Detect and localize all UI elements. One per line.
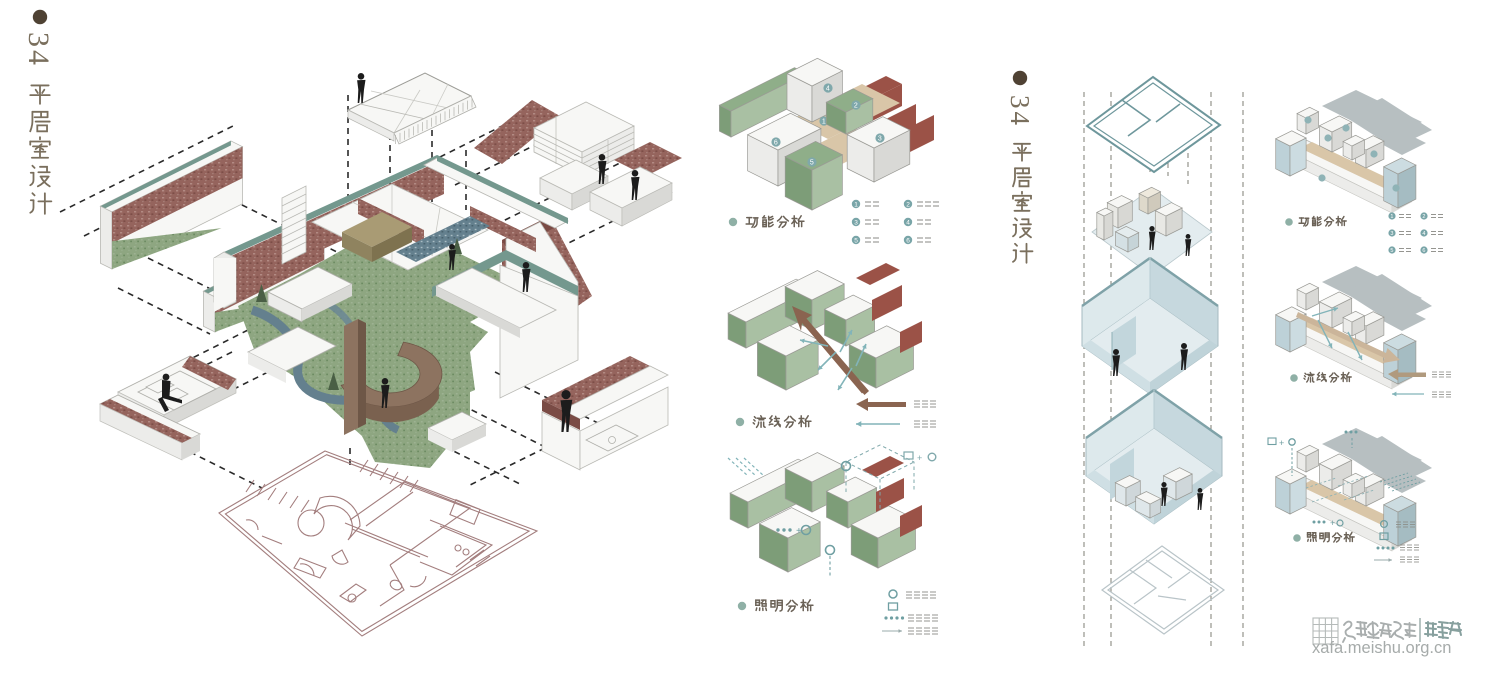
svg-text:6: 6 <box>1422 248 1425 254</box>
svg-text:34: 34 <box>1005 95 1035 128</box>
svg-text:4: 4 <box>826 86 830 93</box>
svg-text:3: 3 <box>854 220 858 227</box>
svg-text:3: 3 <box>1390 231 1393 237</box>
svg-text:34: 34 <box>22 32 55 68</box>
svg-text:1: 1 <box>822 119 826 126</box>
svg-text:+: + <box>1279 438 1284 448</box>
svg-text:3: 3 <box>878 136 882 143</box>
svg-text:6: 6 <box>774 140 778 147</box>
svg-text:+: + <box>796 526 802 537</box>
svg-text:1: 1 <box>854 202 858 209</box>
svg-text:4: 4 <box>1422 231 1425 237</box>
svg-text:1: 1 <box>1390 214 1393 220</box>
svg-text:5: 5 <box>854 238 858 245</box>
svg-text:+: + <box>917 453 922 463</box>
svg-text:5: 5 <box>1390 248 1393 254</box>
svg-text:2: 2 <box>906 202 910 209</box>
svg-text:+: + <box>1330 518 1335 528</box>
svg-text:4: 4 <box>906 220 910 227</box>
svg-text:6: 6 <box>906 238 910 245</box>
svg-text:xafa.meishu.org.cn: xafa.meishu.org.cn <box>1312 639 1451 657</box>
svg-text:2: 2 <box>1422 214 1425 220</box>
svg-text:5: 5 <box>810 160 814 167</box>
svg-text:2: 2 <box>854 103 858 110</box>
